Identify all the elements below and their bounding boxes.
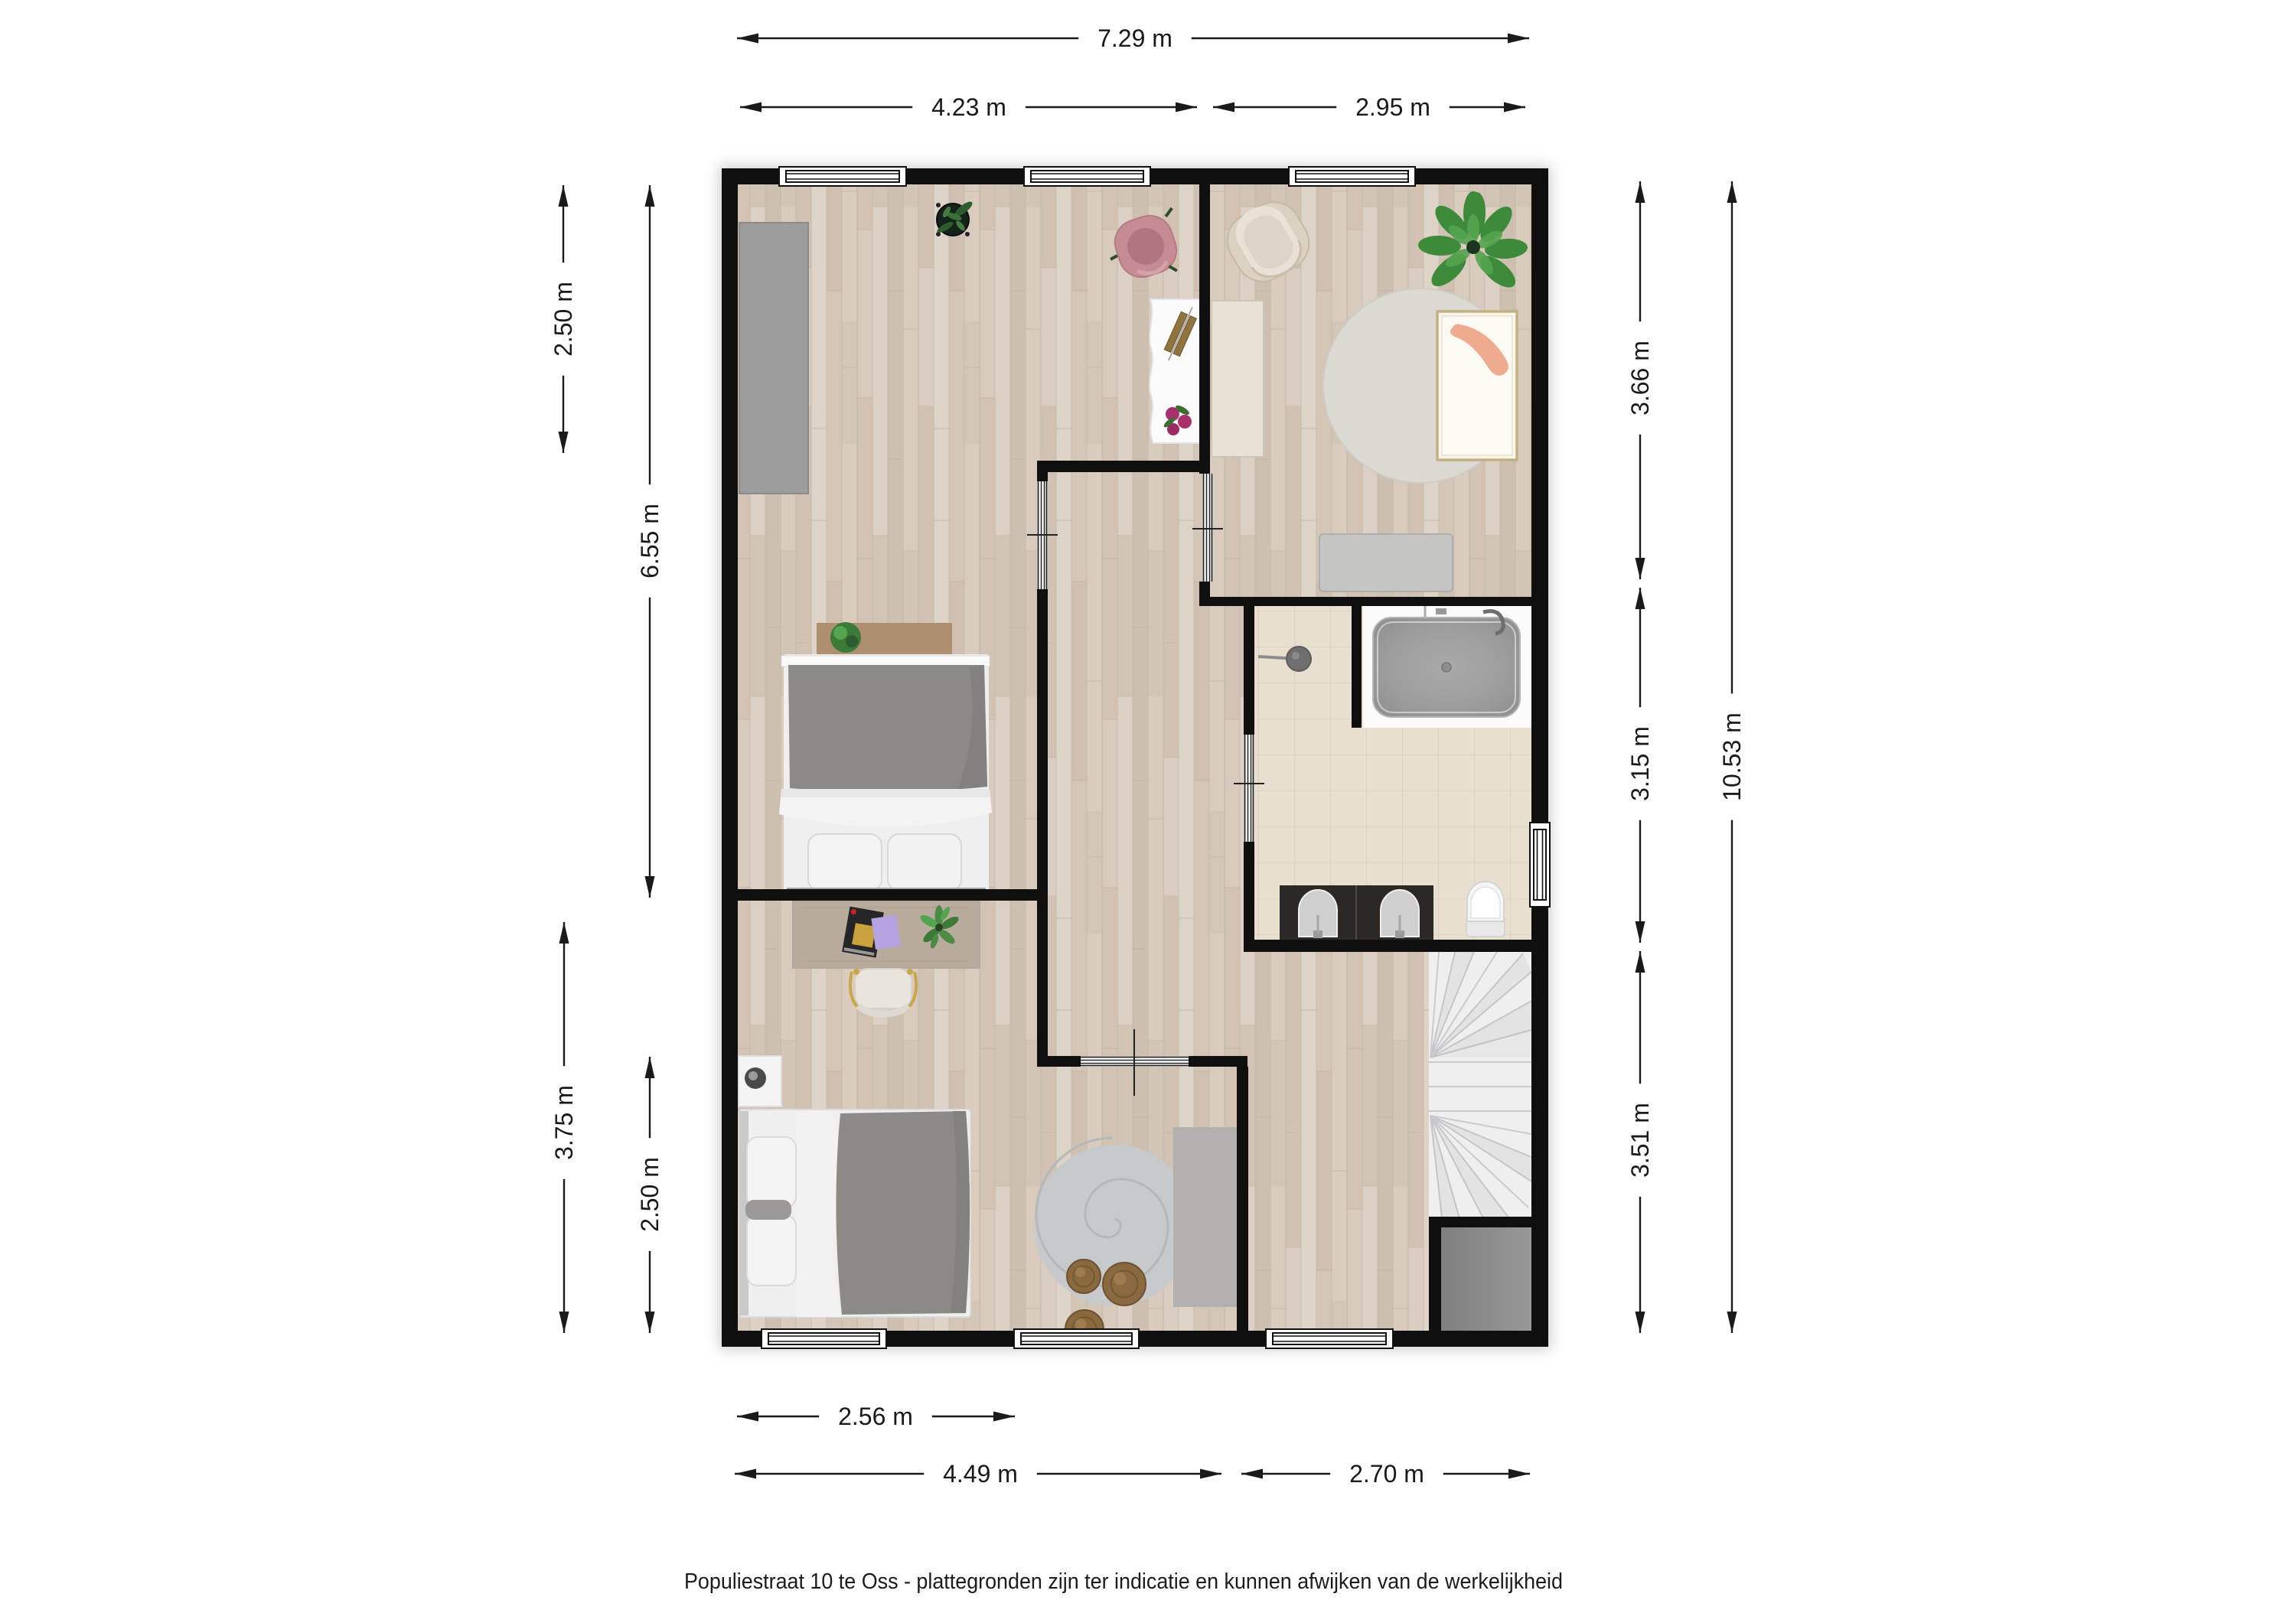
svg-text:3.15 m: 3.15 m [1626,726,1654,801]
svg-text:7.29 m: 7.29 m [1097,24,1172,52]
svg-text:3.66 m: 3.66 m [1626,341,1654,416]
svg-text:3.75 m: 3.75 m [550,1085,578,1160]
svg-text:Populiestraat 10 te Oss - plat: Populiestraat 10 te Oss - plattegronden … [684,1569,1563,1594]
svg-text:6.55 m: 6.55 m [636,504,664,578]
svg-text:2.50 m: 2.50 m [550,282,577,357]
svg-text:2.95 m: 2.95 m [1355,93,1430,121]
svg-text:4.49 m: 4.49 m [943,1460,1018,1488]
svg-text:3.51 m: 3.51 m [1626,1103,1654,1178]
svg-text:2.56 m: 2.56 m [838,1403,913,1430]
svg-text:2.50 m: 2.50 m [636,1157,664,1232]
svg-text:2.70 m: 2.70 m [1349,1460,1424,1488]
svg-text:10.53 m: 10.53 m [1718,712,1746,801]
svg-text:4.23 m: 4.23 m [931,93,1006,121]
